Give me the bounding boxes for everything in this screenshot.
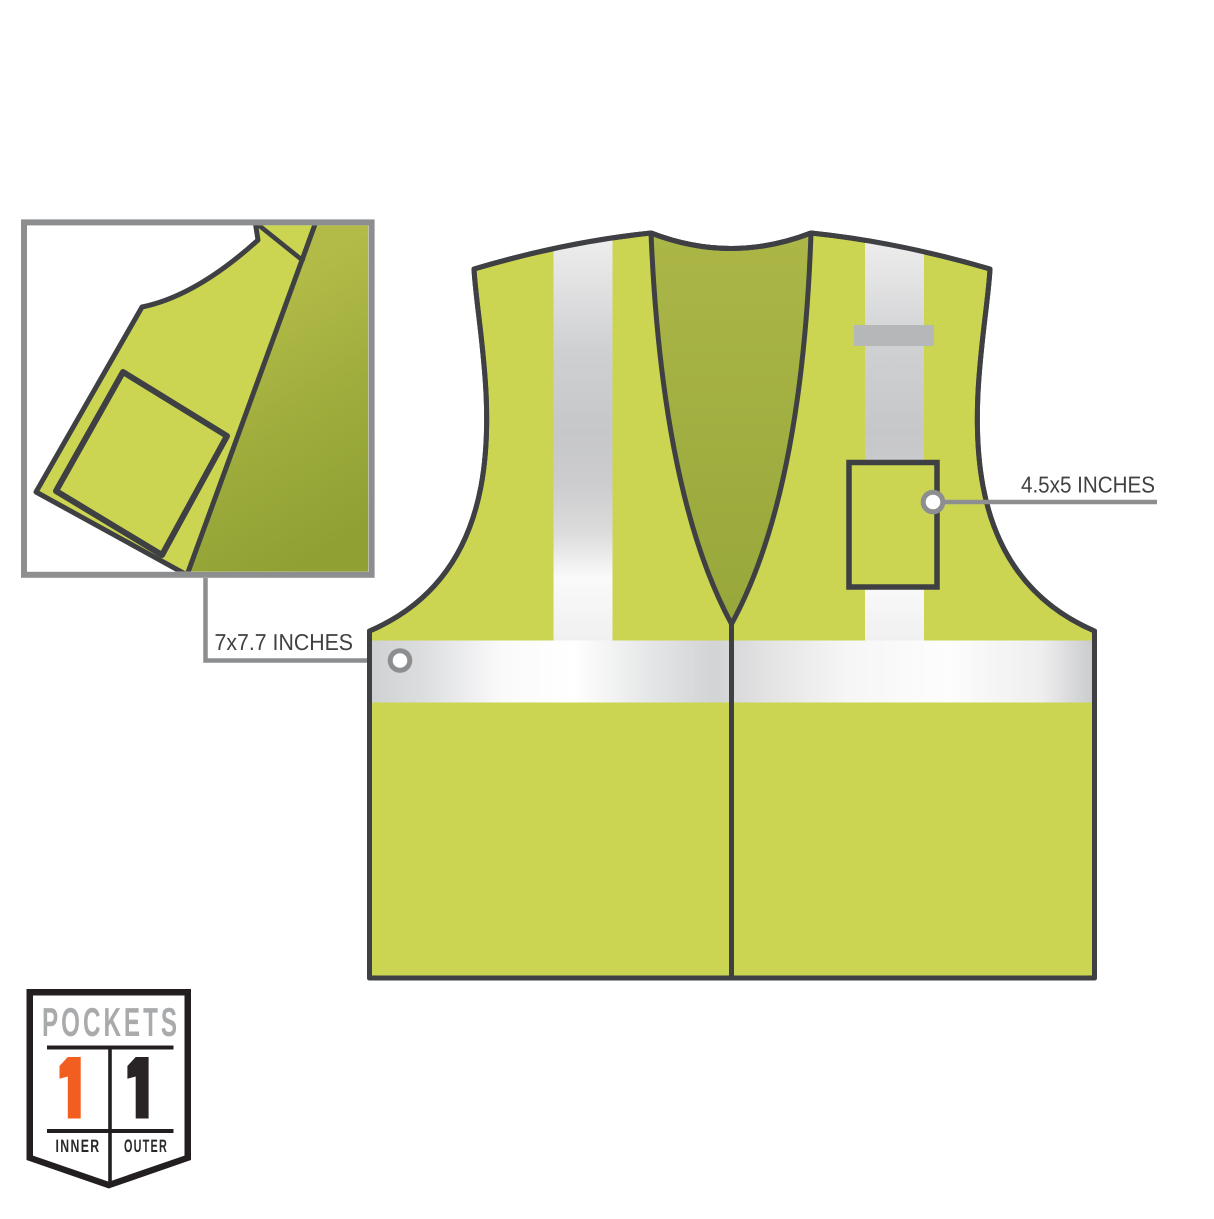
svg-text:4.5x5 INCHES: 4.5x5 INCHES bbox=[1021, 472, 1155, 498]
svg-text:POCKETS: POCKETS bbox=[42, 999, 180, 1045]
svg-text:7x7.7 INCHES: 7x7.7 INCHES bbox=[215, 629, 354, 655]
svg-text:INNER: INNER bbox=[56, 1136, 101, 1156]
svg-text:OUTER: OUTER bbox=[124, 1136, 168, 1156]
